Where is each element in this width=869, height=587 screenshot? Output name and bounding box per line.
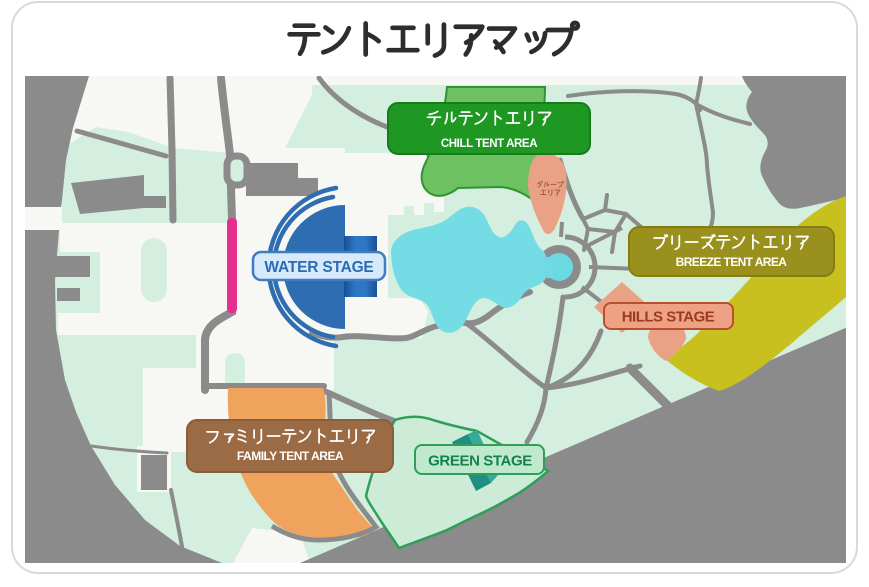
- svg-text:WATER STAGE: WATER STAGE: [264, 259, 373, 276]
- svg-text:GREEN STAGE: GREEN STAGE: [428, 453, 532, 470]
- svg-text:BREEZE TENT AREA: BREEZE TENT AREA: [676, 255, 788, 269]
- svg-text:HILLS STAGE: HILLS STAGE: [622, 309, 715, 326]
- svg-text:CHILL TENT AREA: CHILL TENT AREA: [441, 138, 537, 150]
- svg-text:FAMILY TENT AREA: FAMILY TENT AREA: [237, 449, 344, 463]
